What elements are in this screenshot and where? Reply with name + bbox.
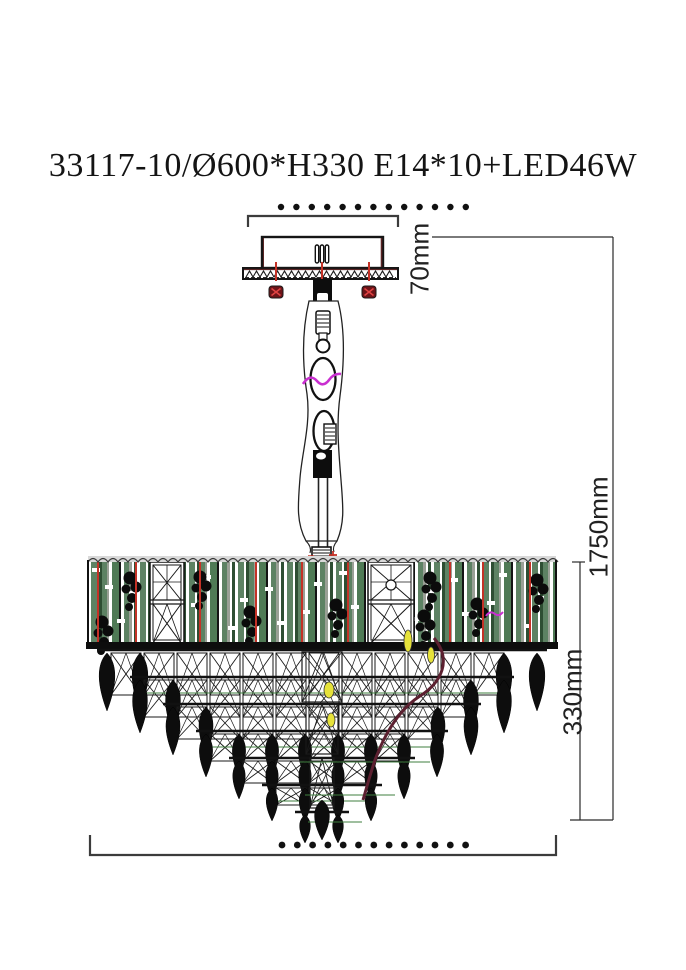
dimension-label-body-height: 330mm (558, 649, 589, 736)
drawing-page: 33117-10/Ø600*H330 E14*10+LED46W 70mm 17… (0, 0, 686, 970)
hanging-chain (298, 301, 343, 560)
bottom-dotted-line (279, 842, 469, 849)
top-width-bracket (248, 216, 398, 227)
dimension-label-total-height: 1750mm (584, 476, 615, 577)
crystal-cascade (97, 650, 547, 843)
drawing-title: 33117-10/Ø600*H330 E14*10+LED46W (0, 147, 686, 185)
shade-band (86, 556, 558, 655)
top-dotted-line (278, 204, 469, 210)
dimension-label-canopy-height: 70mm (405, 223, 436, 295)
mounting-plate (243, 268, 398, 279)
